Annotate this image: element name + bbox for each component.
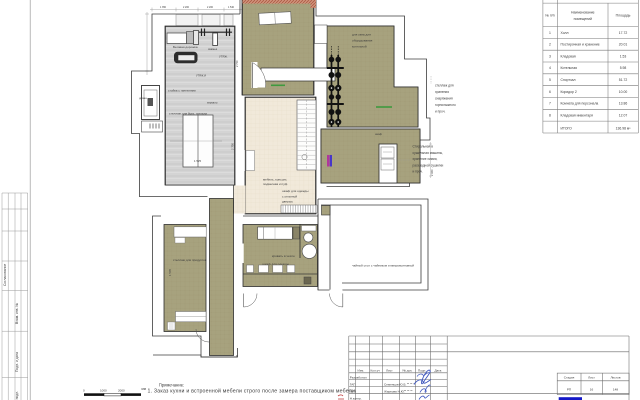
svg-text:чайный стол с чайником и микро: чайный стол с чайником и микроволновкой <box>352 264 414 268</box>
svg-text:хранение химии,: хранение химии, <box>413 157 438 161</box>
svg-text:Подп. и дата: Подп. и дата <box>15 352 19 372</box>
svg-text:хранения: хранения <box>435 90 449 94</box>
svg-text:13.86: 13.86 <box>619 102 628 106</box>
svg-text:Коридор 2: Коридор 2 <box>561 90 577 94</box>
svg-text:ИТОГО: ИТОГО <box>561 126 573 130</box>
svg-text:Примечание:: Примечание: <box>159 382 184 387</box>
svg-text:1. Заказ кухни и встроенной ме: 1. Заказ кухни и встроенной мебели строг… <box>148 388 356 395</box>
svg-text:1.53: 1.53 <box>620 54 627 58</box>
svg-text:17.72: 17.72 <box>619 31 628 35</box>
svg-text:10.00: 10.00 <box>619 90 628 94</box>
svg-text:5: 5 <box>549 78 551 82</box>
svg-text:№ п/п: № п/п <box>545 14 554 18</box>
svg-text:6: 6 <box>549 90 551 94</box>
svg-text:Спортзал: Спортзал <box>561 78 576 82</box>
svg-text:Кладовая: Кладовая <box>561 54 576 58</box>
svg-text:51.72: 51.72 <box>619 78 628 82</box>
svg-text:Лист: Лист <box>588 376 595 380</box>
svg-text:Кол.уч: Кол.уч <box>371 368 381 372</box>
svg-text:Семенцов Ю.Б.: Семенцов Ю.Б. <box>384 382 406 386</box>
svg-text:снаряжения: снаряжения <box>435 97 453 101</box>
svg-text:7: 7 <box>549 102 551 106</box>
svg-text:Беговая дорожка: Беговая дорожка <box>173 45 198 49</box>
svg-text:1: 1 <box>549 31 551 35</box>
svg-text:1 350: 1 350 <box>160 6 167 9</box>
svg-text:и проч.: и проч. <box>435 110 446 114</box>
svg-text:оборудования: оборудования <box>352 39 373 43</box>
svg-text:№ док.: № док. <box>403 368 413 372</box>
svg-text:УТЯЖ.: УТЯЖ. <box>219 55 228 59</box>
svg-text:2: 2 <box>549 43 551 47</box>
svg-text:Подп.: Подп. <box>418 368 426 372</box>
svg-text:стеллаж для йоги, гантели: стеллаж для йоги, гантели <box>169 111 207 115</box>
svg-text:скамья: скамья <box>208 47 218 51</box>
svg-text:Согласование: Согласование <box>3 264 7 286</box>
svg-text:2 750: 2 750 <box>235 60 239 67</box>
svg-text:Стадия: Стадия <box>564 376 575 380</box>
svg-text:мм: мм <box>142 387 146 391</box>
svg-text:шкаф: шкаф <box>375 132 383 136</box>
svg-text:148: 148 <box>613 387 618 391</box>
svg-text:Листов: Листов <box>610 376 620 380</box>
svg-text:Комната для персонала: Комната для персонала <box>561 102 599 106</box>
svg-text:кровать в чехле: кровать в чехле <box>272 254 295 258</box>
svg-text:Инв. № подл.: Инв. № подл. <box>15 391 19 400</box>
svg-text:Дата: Дата <box>435 368 442 372</box>
svg-text:и проч.: и проч. <box>413 170 424 174</box>
svg-text:Лист: Лист <box>386 368 393 372</box>
svg-text:Изм.: Изм. <box>358 368 365 372</box>
svg-text:3: 3 <box>549 54 551 58</box>
svg-text:Наименование: Наименование <box>571 11 595 15</box>
svg-text:раскладной сушилки: раскладной сушилки <box>413 163 444 167</box>
svg-text:Постирочная и хранение: Постирочная и хранение <box>561 43 600 47</box>
svg-text:шкаф для одежды: шкаф для одежды <box>282 189 309 193</box>
svg-text:дверью: дверью <box>282 199 293 203</box>
svg-text:зеркало: зеркало <box>207 101 218 105</box>
svg-text:1 545: 1 545 <box>168 269 172 276</box>
svg-text:16: 16 <box>590 387 594 391</box>
svg-text:Жаркова Н.Ю.: Жаркова Н.Ю. <box>384 389 405 393</box>
svg-text:20.01: 20.01 <box>619 43 628 47</box>
svg-text:2000: 2000 <box>118 389 125 393</box>
svg-text:подвесная и пуф: подвесная и пуф <box>263 182 288 186</box>
svg-text:РП: РП <box>567 387 571 391</box>
svg-text:5.98: 5.98 <box>620 66 627 70</box>
svg-text:диван: диван <box>139 96 147 100</box>
svg-text:стойка с гантелями: стойка с гантелями <box>168 89 196 93</box>
svg-text:8: 8 <box>549 114 551 118</box>
svg-text:Площадь: Площадь <box>616 14 631 18</box>
svg-text:помещений: помещений <box>574 17 592 21</box>
svg-text:стеллаж для: стеллаж для <box>435 84 454 88</box>
svg-text:Холл: Холл <box>561 31 569 35</box>
svg-text:Кладовая инвентаря: Кладовая инвентаря <box>561 114 594 118</box>
svg-text:сушильная машины,: сушильная машины, <box>413 151 444 155</box>
svg-text:Стиральная в: Стиральная в <box>413 145 434 149</box>
svg-text:2 200: 2 200 <box>207 6 214 9</box>
svg-text:Взам. инв. №: Взам. инв. № <box>15 303 19 324</box>
svg-text:1 525: 1 525 <box>194 159 201 163</box>
svg-text:4: 4 <box>549 66 551 70</box>
svg-text:для окна для: для окна для <box>352 33 371 37</box>
svg-text:Котельная: Котельная <box>561 66 578 70</box>
svg-text:2 750: 2 750 <box>231 143 235 150</box>
svg-text:горнолыжного: горнолыжного <box>435 103 456 107</box>
svg-text:с откатной: с откатной <box>282 194 297 198</box>
svg-text:мебель, консоль: мебель, консоль <box>263 178 287 182</box>
svg-text:136.98 м²: 136.98 м² <box>616 126 632 130</box>
svg-text:ГАП: ГАП <box>350 382 356 386</box>
svg-text:УТЯЖ.И: УТЯЖ.И <box>196 74 206 78</box>
svg-text:1000: 1000 <box>100 389 107 393</box>
svg-text:Разработал: Разработал <box>350 375 367 379</box>
svg-text:стеллаж для продуктов: стеллаж для продуктов <box>173 258 207 262</box>
svg-text:2 200: 2 200 <box>183 6 190 9</box>
svg-text:Н.контр.: Н.контр. <box>350 396 362 400</box>
svg-text:1 540: 1 540 <box>228 6 235 9</box>
svg-text:12.07: 12.07 <box>619 114 628 118</box>
svg-text:котельной: котельной <box>352 45 367 49</box>
